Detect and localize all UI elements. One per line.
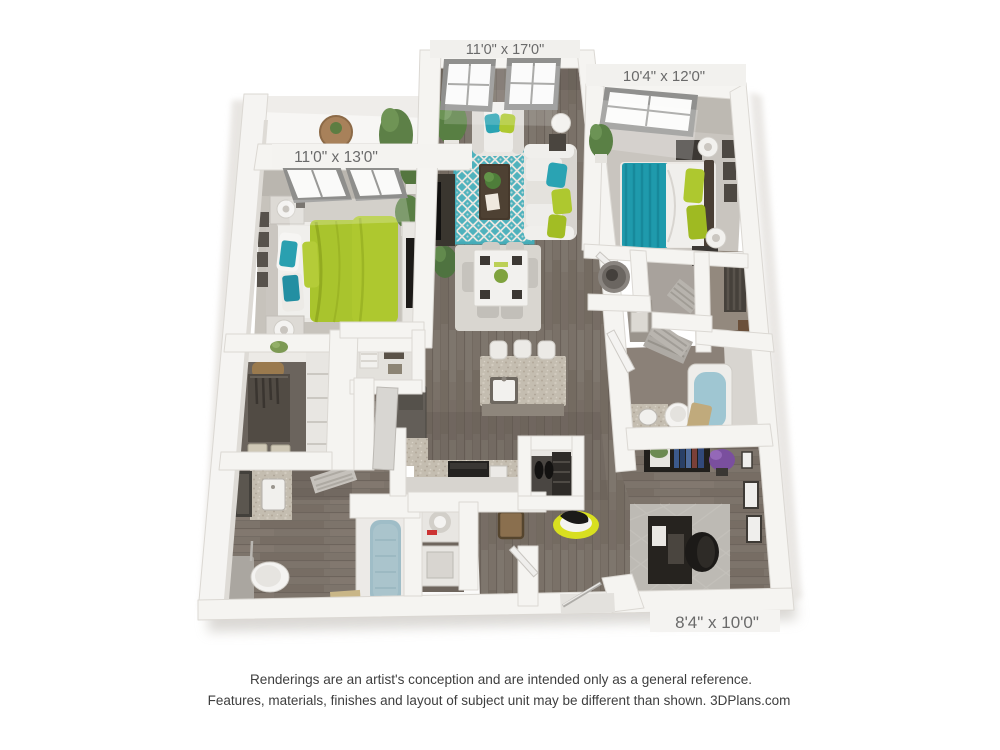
svg-text:Renderings are an artist's con: Renderings are an artist's conception an… — [250, 672, 752, 687]
svg-text:11'0" x 13'0": 11'0" x 13'0" — [294, 149, 378, 166]
svg-text:Features, materials, finishes: Features, materials, finishes and layout… — [208, 693, 791, 708]
svg-text:8'4" x 10'0": 8'4" x 10'0" — [675, 613, 759, 632]
svg-text:11'0" x 17'0": 11'0" x 17'0" — [466, 42, 544, 58]
svg-text:10'4" x 12'0": 10'4" x 12'0" — [623, 68, 705, 85]
